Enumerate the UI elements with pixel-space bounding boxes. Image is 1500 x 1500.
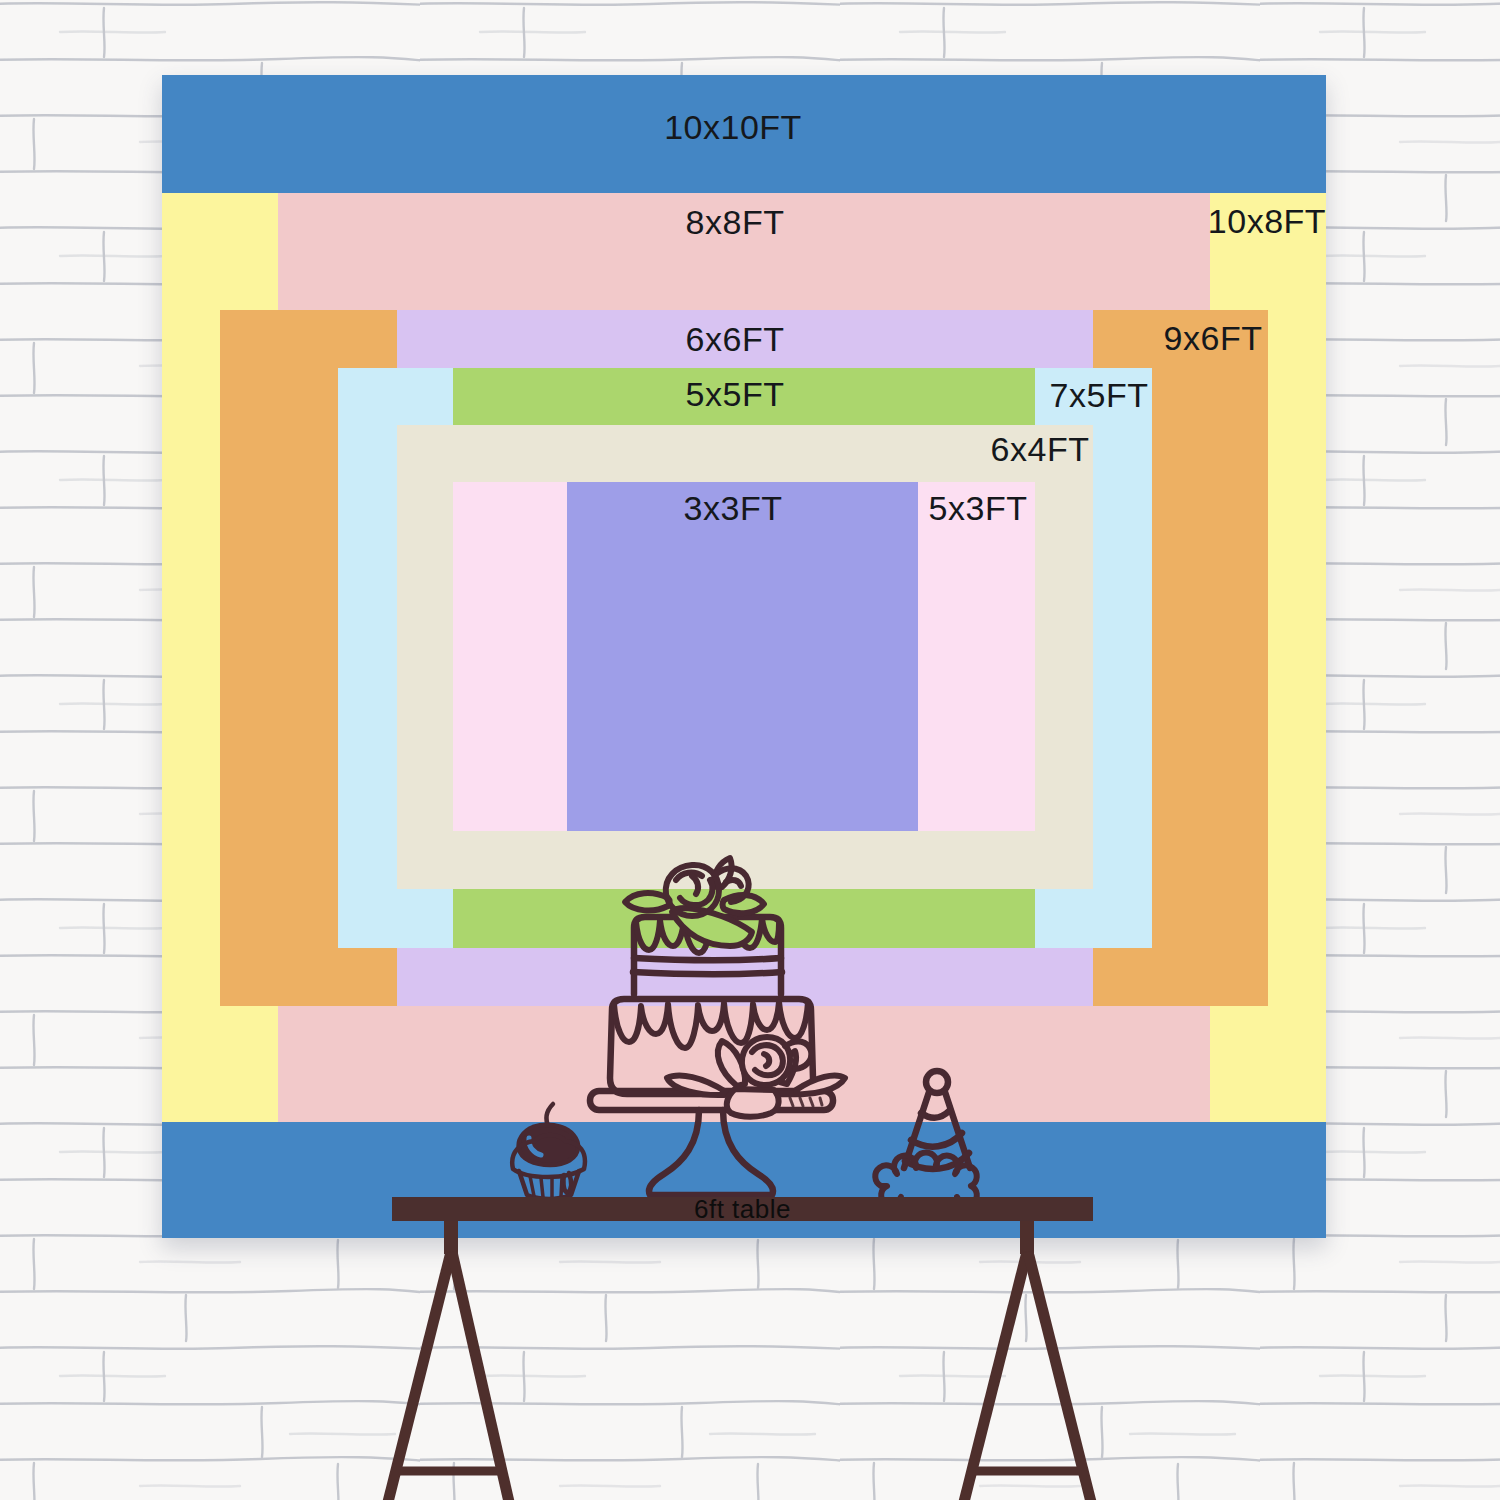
size-label-10x8ft: 10x8FT <box>1208 202 1326 241</box>
table-top: 6ft table <box>392 1197 1093 1221</box>
size-label-7x5ft: 7x5FT <box>1050 376 1149 415</box>
size-label-6x4ft: 6x4FT <box>991 430 1090 469</box>
size-label-6x6ft: 6x6FT <box>686 320 785 359</box>
size-label-5x3ft: 5x3FT <box>929 489 1028 528</box>
size-label-8x8ft: 8x8FT <box>686 203 785 242</box>
backdrop-layer-3x3ft <box>567 482 918 831</box>
size-label-10x10ft: 10x10FT <box>664 108 802 147</box>
size-label-9x6ft: 9x6FT <box>1164 319 1263 358</box>
size-label-3x3ft: 3x3FT <box>684 489 783 528</box>
backdrop-size-chart: 10x10FT 10x8FT 8x8FT 9x6FT 6x6FT 7x5FT 5… <box>0 0 1500 1500</box>
table-label: 6ft table <box>694 1194 791 1225</box>
size-label-5x5ft: 5x5FT <box>686 375 785 414</box>
